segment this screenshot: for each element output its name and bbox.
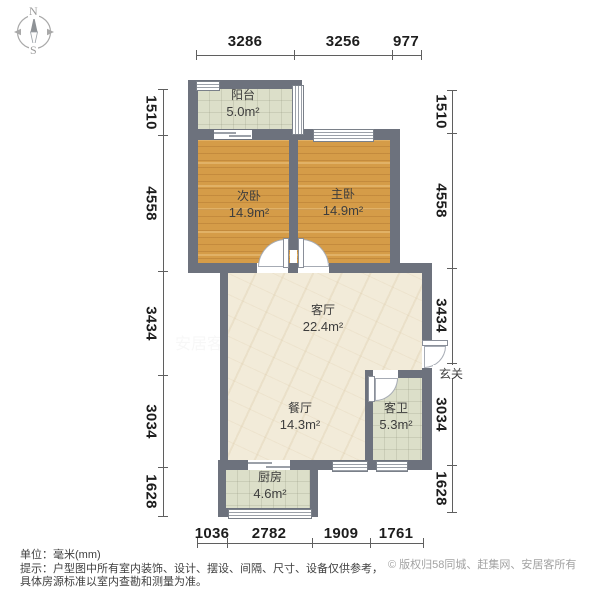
room-label-balcony: 阳台 5.0m² bbox=[201, 88, 285, 120]
dimension-label-bottom: 1761 bbox=[366, 525, 426, 542]
compass-south-label: S bbox=[29, 43, 38, 58]
compass-north-label: N bbox=[28, 4, 39, 19]
room-area: 5.0m² bbox=[201, 103, 285, 120]
room-name: 厨房 bbox=[228, 470, 312, 485]
dimension-label-top: 3286 bbox=[215, 33, 275, 50]
room-label-second-bedroom: 次卧 14.9m² bbox=[207, 189, 291, 221]
dimension-label-top: 3256 bbox=[313, 33, 373, 50]
sliding-door-balcony bbox=[214, 130, 252, 139]
room-area: 14.9m² bbox=[301, 202, 385, 219]
room-area: 4.6m² bbox=[228, 485, 312, 502]
dimension-label-left: 1510 bbox=[143, 83, 160, 143]
dimension-label-bottom: 1909 bbox=[311, 525, 371, 542]
floor-plan-page: { "compass": { "north": "N", "south": "S… bbox=[0, 0, 600, 600]
sliding-door-panel bbox=[214, 132, 236, 134]
dimension-label-bottom: 1036 bbox=[182, 525, 242, 542]
dimension-line-bottom bbox=[197, 543, 423, 544]
wall-kitchen-left bbox=[218, 460, 226, 517]
door-leaf-bathroom bbox=[368, 376, 375, 402]
door-opening-bathroom bbox=[373, 370, 398, 378]
watermark-text: 安居客 bbox=[175, 330, 223, 354]
room-name: 阳台 bbox=[201, 88, 285, 103]
dimension-label-left: 4558 bbox=[143, 174, 160, 234]
dimension-label-right: 3034 bbox=[433, 385, 450, 445]
sliding-door-panel bbox=[248, 462, 272, 464]
door-leaf-master-bedroom bbox=[298, 238, 304, 268]
dimension-tick bbox=[447, 268, 457, 269]
room-label-master-bedroom: 主卧 14.9m² bbox=[301, 187, 385, 219]
window-balcony-right bbox=[292, 85, 304, 135]
dimension-label-left: 3434 bbox=[143, 294, 160, 354]
room-area: 22.4m² bbox=[281, 318, 365, 335]
sliding-door-kitchen bbox=[248, 460, 290, 470]
dimension-tick bbox=[421, 50, 422, 60]
wall-left bbox=[188, 80, 198, 273]
dimension-label-top: 977 bbox=[376, 33, 436, 50]
dimension-tick bbox=[158, 375, 168, 376]
dimension-line-top bbox=[196, 55, 421, 56]
dimension-tick bbox=[196, 50, 197, 60]
wall-living-left bbox=[220, 263, 228, 470]
dimension-tick bbox=[158, 516, 168, 517]
dimension-tick bbox=[158, 135, 168, 136]
dimension-tick bbox=[158, 467, 168, 468]
room-area: 14.9m² bbox=[207, 204, 291, 221]
window-bathroom-bottom bbox=[376, 461, 408, 472]
dimension-tick bbox=[158, 89, 168, 90]
room-name: 次卧 bbox=[207, 189, 291, 204]
room-name: 客厅 bbox=[281, 303, 365, 318]
room-name: 餐厅 bbox=[258, 401, 342, 416]
dimension-label-right: 4558 bbox=[433, 171, 450, 231]
room-label-kitchen: 厨房 4.6m² bbox=[228, 470, 312, 502]
dimension-tick bbox=[447, 363, 457, 364]
window-master-bedroom bbox=[313, 129, 374, 142]
room-name: 客卫 bbox=[354, 401, 438, 416]
window-dining-bottom bbox=[332, 461, 368, 472]
room-label-entry: 玄关 bbox=[433, 365, 469, 379]
dimension-tick bbox=[158, 271, 168, 272]
dimension-label-right: 3434 bbox=[433, 286, 450, 346]
sliding-door-panel bbox=[266, 466, 290, 468]
dimension-line-right bbox=[452, 90, 453, 512]
dimension-tick bbox=[392, 50, 393, 60]
dimension-label-right: 1510 bbox=[433, 82, 450, 142]
dimension-label-left: 1628 bbox=[143, 462, 160, 522]
room-label-living-room: 客厅 22.4m² bbox=[281, 303, 365, 335]
room-name: 主卧 bbox=[301, 187, 385, 202]
dimension-label-left: 3034 bbox=[143, 392, 160, 452]
door-leaf-second-bedroom bbox=[283, 238, 289, 268]
dimension-tick bbox=[294, 50, 295, 60]
footer-unit-note: 单位：毫米(mm) bbox=[20, 549, 101, 562]
room-area: 5.3m² bbox=[354, 416, 438, 433]
footer-tip-line1: 提示：户型图中所有室内装饰、设计、摆设、间隔、尺寸、设备仅供参考， bbox=[20, 563, 383, 576]
footer-tip-line2: 具体房源标准以室内查勘和测量为准。 bbox=[20, 576, 207, 589]
footer-copyright: © 版权归58同城、赶集网、安居客所有 bbox=[388, 559, 576, 572]
dimension-label-bottom: 2782 bbox=[239, 525, 299, 542]
sliding-door-panel bbox=[229, 135, 251, 137]
dimension-line-left bbox=[163, 89, 164, 516]
room-area: 14.3m² bbox=[258, 416, 342, 433]
dimension-label-right: 1628 bbox=[433, 459, 450, 519]
window-kitchen-bottom bbox=[228, 509, 312, 519]
room-label-dining-room: 餐厅 14.3m² bbox=[258, 401, 342, 433]
room-label-guest-bathroom: 客卫 5.3m² bbox=[354, 401, 438, 433]
wall-master-right bbox=[390, 129, 400, 273]
